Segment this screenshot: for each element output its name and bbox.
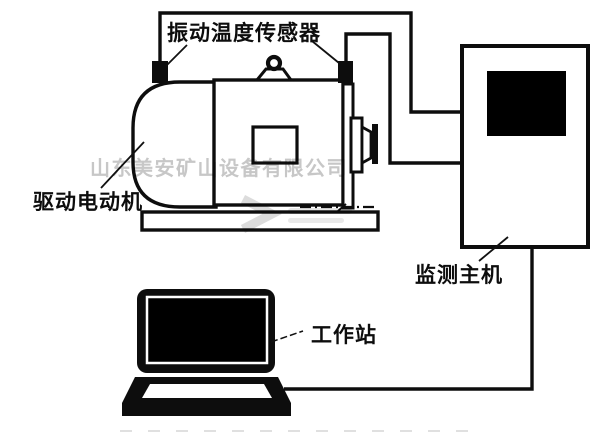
label-drive-motor: 驱动电动机	[33, 192, 143, 213]
watermark-chevron-icon	[243, 199, 272, 229]
watermark-text: 山东美安矿山设备有限公司	[90, 158, 348, 178]
label-monitoring-host: 监测主机	[415, 265, 503, 286]
watermark-blur-bar	[288, 208, 352, 214]
diagram-canvas: 山东美安矿山设备有限公司 振动温度传感器 驱动电动机 监测主机 工作站	[0, 0, 600, 436]
watermark-blur-bar	[288, 218, 344, 223]
label-workstation: 工作站	[311, 325, 377, 346]
watermark-logo-layer	[0, 0, 600, 436]
label-vibration-temperature-sensor: 振动温度传感器	[167, 23, 321, 44]
